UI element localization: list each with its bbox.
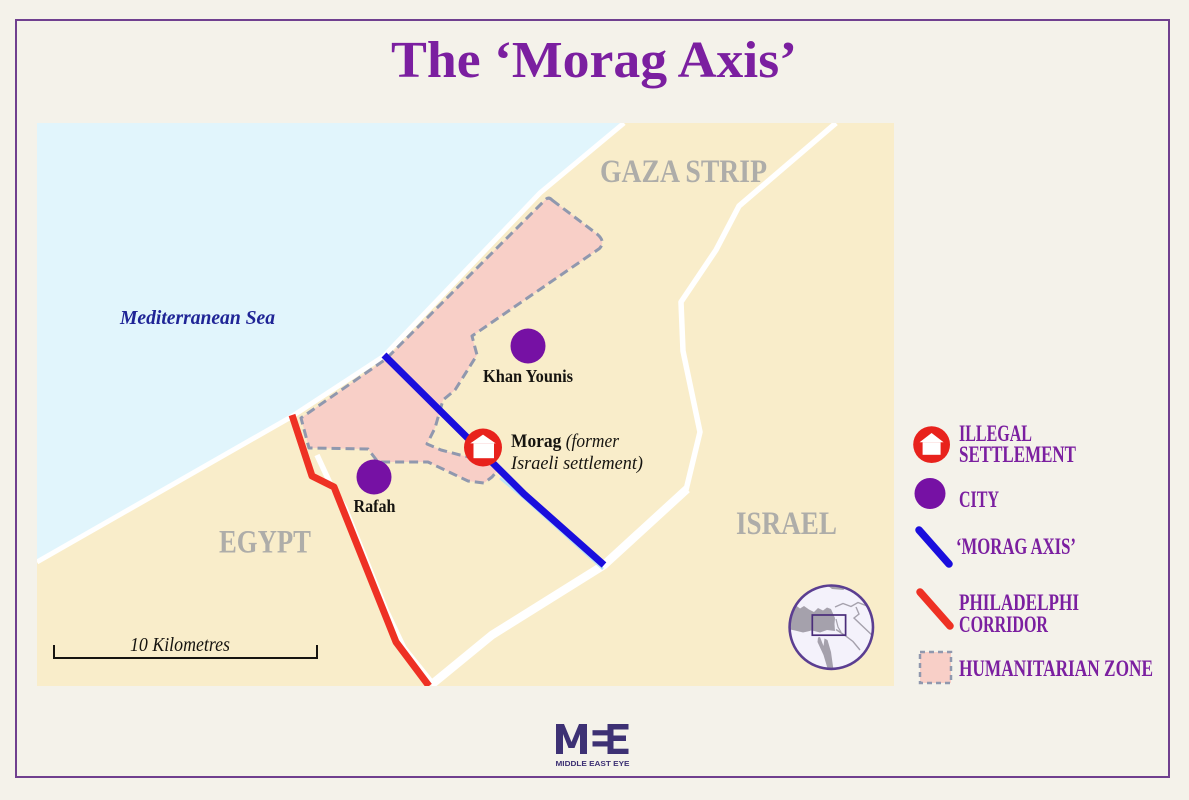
svg-text:Israeli settlement): Israeli settlement) xyxy=(510,453,643,474)
svg-text:CITY: CITY xyxy=(959,487,999,512)
svg-text:ISRAEL: ISRAEL xyxy=(736,506,837,542)
svg-text:Khan Younis: Khan Younis xyxy=(483,366,573,386)
svg-text:The ‘Morag Axis’: The ‘Morag Axis’ xyxy=(391,32,797,89)
svg-text:CORRIDOR: CORRIDOR xyxy=(959,612,1048,637)
svg-text:GAZA STRIP: GAZA STRIP xyxy=(600,154,767,190)
svg-text:SETTLEMENT: SETTLEMENT xyxy=(959,442,1076,467)
svg-text:‘MORAG AXIS’: ‘MORAG AXIS’ xyxy=(956,534,1076,559)
svg-text:EGYPT: EGYPT xyxy=(219,525,311,561)
svg-text:MIDDLE EAST EYE: MIDDLE EAST EYE xyxy=(556,759,630,768)
svg-text:HUMANITARIAN ZONE: HUMANITARIAN ZONE xyxy=(959,656,1153,681)
svg-text:Morag (former: Morag (former xyxy=(511,431,620,452)
svg-text:Rafah: Rafah xyxy=(354,496,396,516)
svg-text:10 Kilometres: 10 Kilometres xyxy=(130,634,230,656)
svg-text:Mediterranean Sea: Mediterranean Sea xyxy=(119,307,275,329)
